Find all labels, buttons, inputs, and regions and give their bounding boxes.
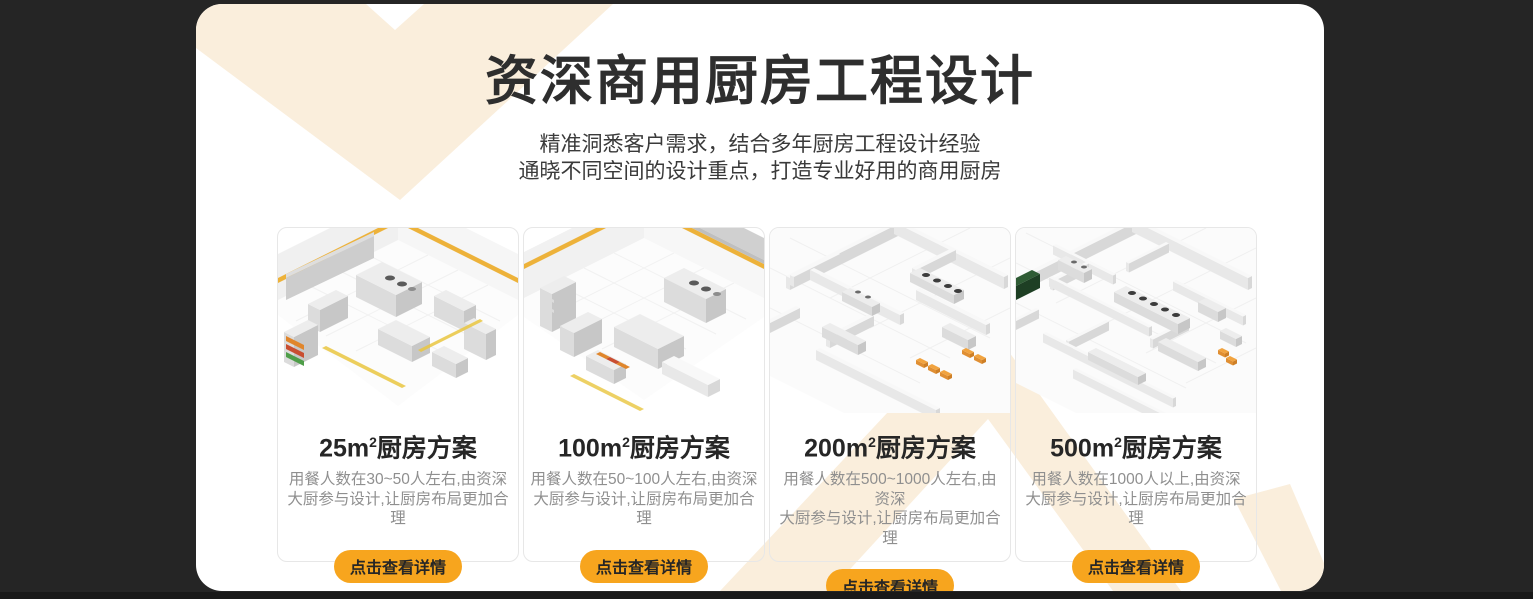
card-description-line1: 用餐人数在50~100人左右,由资深 bbox=[531, 471, 758, 488]
card-title-area: 25m bbox=[319, 434, 369, 462]
card-description: 用餐人数在50~100人左右,由资深大厨参与设计,让厨房布局更加合理 bbox=[530, 470, 758, 529]
card-title: 25m2厨房方案 bbox=[278, 429, 518, 462]
plan-card-row: 25m2厨房方案 用餐人数在30~50人左右,由资深大厨参与设计,让厨房布局更加… bbox=[277, 227, 1257, 562]
kitchen-illustration-200 bbox=[770, 228, 1010, 413]
card-description-line1: 用餐人数在30~50人左右,由资深 bbox=[289, 471, 507, 488]
view-details-button[interactable]: 点击查看详情 bbox=[1072, 550, 1200, 583]
squared-superscript: 2 bbox=[622, 434, 630, 450]
page-background: 资深商用厨房工程设计 精准洞悉客户需求，结合多年厨房工程设计经验 通晓不同空间的… bbox=[0, 0, 1533, 599]
card-description: 用餐人数在1000人以上,由资深大厨参与设计,让厨房布局更加合理 bbox=[1022, 470, 1250, 529]
kitchen-illustration-500 bbox=[1016, 228, 1256, 413]
card-description-line1: 用餐人数在1000人以上,由资深 bbox=[1031, 471, 1240, 488]
plan-card-500: 500m2厨房方案 用餐人数在1000人以上,由资深大厨参与设计,让厨房布局更加… bbox=[1015, 227, 1257, 562]
subtitle-line-1: 精准洞悉客户需求，结合多年厨房工程设计经验 bbox=[196, 131, 1324, 158]
kitchen-illustration-100 bbox=[524, 228, 764, 413]
card-title: 200m2厨房方案 bbox=[770, 429, 1010, 462]
card-title-area: 500m bbox=[1050, 434, 1114, 462]
card-title-area: 200m bbox=[804, 434, 868, 462]
card-title-suffix: 厨房方案 bbox=[377, 434, 477, 462]
squared-superscript: 2 bbox=[1114, 434, 1122, 450]
bottom-section-strip bbox=[0, 592, 1533, 599]
subtitle-line-2: 通晓不同空间的设计重点，打造专业好用的商用厨房 bbox=[196, 158, 1324, 185]
plan-card-200: 200m2厨房方案 用餐人数在500~1000人左右,由资深大厨参与设计,让厨房… bbox=[769, 227, 1011, 562]
card-description: 用餐人数在500~1000人左右,由资深大厨参与设计,让厨房布局更加合理 bbox=[776, 470, 1004, 548]
content-panel: 资深商用厨房工程设计 精准洞悉客户需求，结合多年厨房工程设计经验 通晓不同空间的… bbox=[196, 4, 1324, 591]
plan-card-100: 100m2厨房方案 用餐人数在50~100人左右,由资深大厨参与设计,让厨房布局… bbox=[523, 227, 765, 562]
card-title: 100m2厨房方案 bbox=[524, 429, 764, 462]
card-title-suffix: 厨房方案 bbox=[1122, 434, 1222, 462]
card-title-suffix: 厨房方案 bbox=[630, 434, 730, 462]
card-description-line2: 大厨参与设计,让厨房布局更加合理 bbox=[533, 491, 754, 528]
card-title-suffix: 厨房方案 bbox=[876, 434, 976, 462]
card-description-line2: 大厨参与设计,让厨房布局更加合理 bbox=[287, 491, 508, 528]
view-details-button[interactable]: 点击查看详情 bbox=[334, 550, 462, 583]
card-title: 500m2厨房方案 bbox=[1016, 429, 1256, 462]
squared-superscript: 2 bbox=[868, 434, 876, 450]
view-details-button[interactable]: 点击查看详情 bbox=[826, 569, 954, 591]
card-description-line2: 大厨参与设计,让厨房布局更加合理 bbox=[779, 510, 1000, 547]
kitchen-illustration-25 bbox=[278, 228, 518, 413]
card-description-line1: 用餐人数在500~1000人左右,由资深 bbox=[783, 471, 996, 508]
plan-card-25: 25m2厨房方案 用餐人数在30~50人左右,由资深大厨参与设计,让厨房布局更加… bbox=[277, 227, 519, 562]
view-details-button[interactable]: 点击查看详情 bbox=[580, 550, 708, 583]
squared-superscript: 2 bbox=[369, 434, 377, 450]
card-description: 用餐人数在30~50人左右,由资深大厨参与设计,让厨房布局更加合理 bbox=[284, 470, 512, 529]
card-title-area: 100m bbox=[558, 434, 622, 462]
card-description-line2: 大厨参与设计,让厨房布局更加合理 bbox=[1025, 491, 1246, 528]
page-title: 资深商用厨房工程设计 bbox=[196, 52, 1324, 112]
